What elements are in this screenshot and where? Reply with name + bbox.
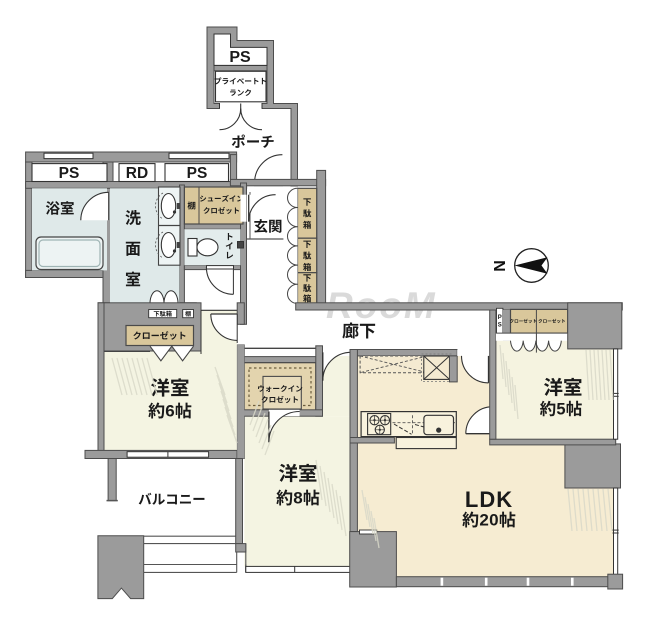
svg-text:LDK: LDK [465, 487, 513, 512]
svg-text:PS: PS [187, 165, 208, 182]
svg-text:S: S [498, 323, 502, 329]
svg-text:N: N [492, 260, 509, 272]
svg-text:0: 0 [489, 511, 498, 530]
svg-text:2: 2 [479, 511, 488, 530]
svg-text:PS: PS [229, 49, 251, 66]
svg-text:5: 5 [556, 400, 565, 418]
svg-text:8: 8 [293, 489, 302, 508]
svg-text:6: 6 [165, 402, 174, 421]
svg-text:RD: RD [126, 165, 148, 182]
svg-text:P: P [498, 315, 502, 321]
svg-text:PS: PS [59, 165, 80, 182]
